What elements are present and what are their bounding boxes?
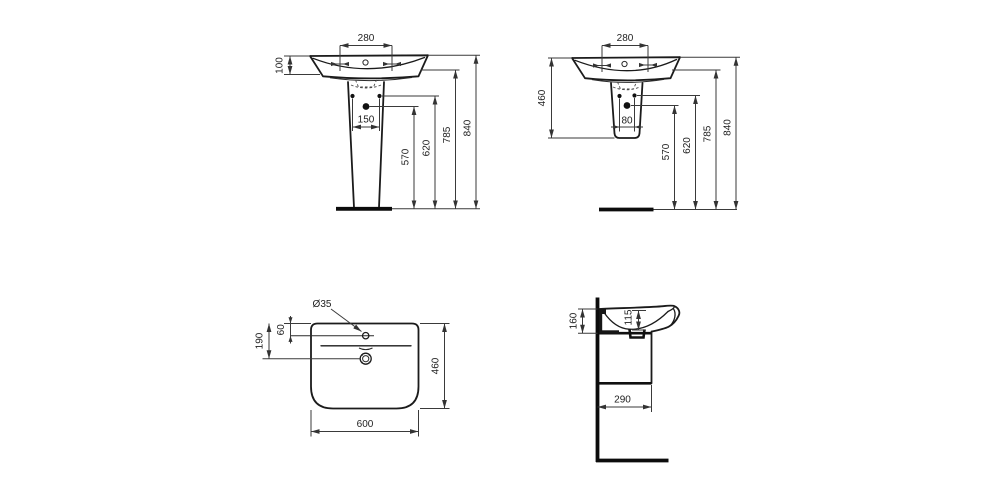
view-side-section: 160 115 290 — [569, 298, 680, 463]
view-plan: Ø35 60 190 600 460 — [255, 299, 450, 437]
dim-label: 840 — [723, 119, 734, 136]
dim-overall-depth: 460 — [420, 324, 450, 409]
pedestal-fixing-hole-right — [377, 94, 381, 98]
dim-taphole-spacing: 280 — [340, 33, 392, 46]
dim-taphole-spacing: 280 — [602, 33, 648, 46]
dim-taphole-diameter: Ø35 — [313, 299, 362, 332]
drain-hole — [360, 353, 371, 364]
drawing-canvas: 280 100 150 570 620 785 — [0, 0, 1000, 500]
dim-label: 620 — [682, 137, 693, 154]
dim-projection-depth: 290 — [598, 385, 652, 412]
dim-label: 280 — [617, 33, 634, 44]
dim-overall-width: 600 — [311, 410, 419, 437]
dim-label: 60 — [276, 324, 287, 336]
basin-outline — [310, 55, 428, 78]
dim-label: 460 — [431, 357, 442, 374]
semipedestal-outline — [611, 83, 643, 138]
dim-semipedestal-height: 460 — [537, 58, 615, 138]
dim-taphole-offset: 60 — [276, 316, 311, 344]
dim-rim-total-height: 840 — [723, 57, 737, 209]
hidden-drain-detail — [613, 82, 640, 90]
dim-rim-to-underside: 160 — [569, 309, 598, 333]
dim-label: 150 — [358, 115, 375, 126]
dim-label: 280 — [358, 33, 375, 44]
dim-label: 785 — [442, 126, 453, 143]
dim-fixing-holes-height: 620 — [422, 96, 436, 209]
dim-trap-outlet-height: 570 — [661, 106, 675, 210]
dim-label: 840 — [463, 119, 474, 136]
hidden-drain-detail — [351, 80, 381, 88]
dim-label: 600 — [357, 419, 374, 430]
semipedestal-fixing-hole-right — [632, 93, 636, 97]
basin-side-profile — [599, 306, 679, 332]
overflow-hole-mark — [363, 60, 368, 65]
dim-bowl-depth: 115 — [624, 309, 647, 330]
taphole-marker-left — [593, 46, 611, 73]
dim-label: Ø35 — [313, 299, 332, 310]
dim-basin-underside-height: 785 — [703, 70, 717, 210]
technical-drawing: 280 100 150 570 620 785 — [0, 0, 1000, 500]
dim-label: 620 — [422, 139, 433, 156]
trap-outlet-hole — [363, 103, 370, 110]
dim-drain-offset: 190 — [255, 324, 270, 359]
semipedestal-fixing-hole-left — [617, 94, 621, 98]
dim-label: 570 — [661, 143, 672, 160]
dim-fixing-holes-height: 620 — [682, 96, 696, 210]
dim-label: 80 — [621, 116, 633, 127]
dim-rim-total-height: 840 — [463, 55, 477, 209]
dim-label: 100 — [275, 57, 286, 74]
view-front-with-semipedestal: 280 460 80 570 620 785 — [537, 33, 740, 210]
dim-label: 460 — [537, 89, 548, 106]
pedestal-outline — [348, 82, 384, 208]
dim-label: 190 — [255, 332, 266, 349]
bowl-section-curve — [604, 312, 668, 330]
pedestal-fixing-hole-left — [350, 94, 354, 98]
wall-fixing-section — [599, 309, 619, 334]
dim-label: 160 — [569, 312, 580, 329]
overflow-hole-mark — [622, 61, 627, 66]
overflow-notch — [359, 348, 373, 350]
dim-label: 570 — [401, 148, 412, 165]
dim-label: 785 — [703, 125, 714, 142]
dim-label: 290 — [614, 395, 631, 406]
dim-label: 115 — [624, 309, 635, 325]
basin-bowl-curve — [313, 58, 425, 69]
dim-basin-underside-height: 785 — [442, 70, 456, 209]
dim-trap-outlet-height: 570 — [401, 107, 415, 209]
basin-plan-outline — [311, 324, 419, 409]
view-front-with-pedestal: 280 100 150 570 620 785 — [275, 33, 481, 209]
trap-outlet-hole — [624, 102, 631, 109]
basin-outline — [572, 57, 680, 80]
